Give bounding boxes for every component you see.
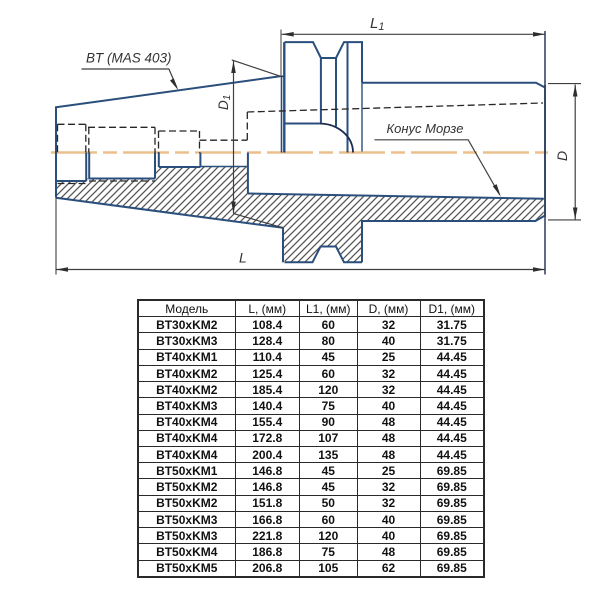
svg-text:Конус Морзе: Конус Морзе [387,121,464,136]
svg-text:L1: L1 [370,15,384,33]
svg-text:L: L [239,250,247,266]
svg-text:D1: D1 [216,95,233,110]
svg-text:BT (MAS 403): BT (MAS 403) [86,51,172,66]
svg-text:D: D [554,151,570,161]
